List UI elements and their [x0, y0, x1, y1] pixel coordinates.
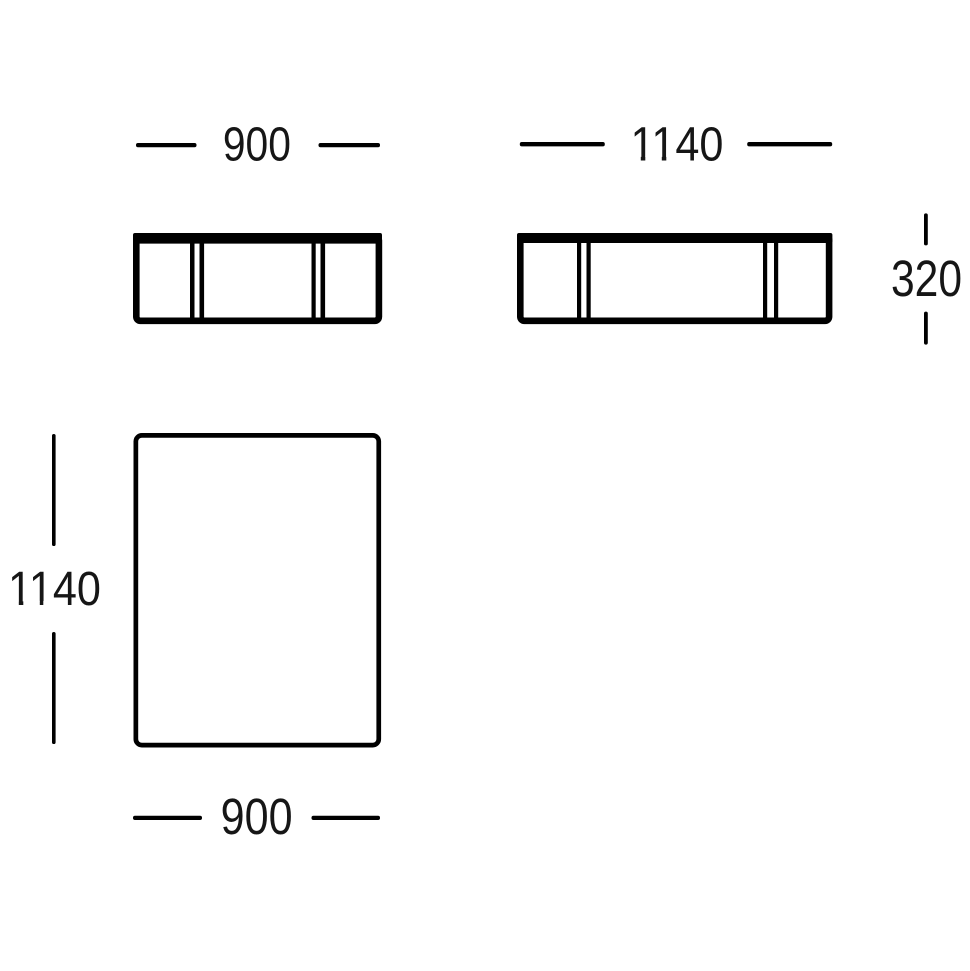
- svg-text:900: 900: [221, 789, 293, 846]
- svg-text:900: 900: [223, 118, 291, 171]
- svg-text:1140: 1140: [631, 117, 724, 171]
- svg-text:1140: 1140: [8, 562, 101, 616]
- svg-text:320: 320: [891, 249, 962, 307]
